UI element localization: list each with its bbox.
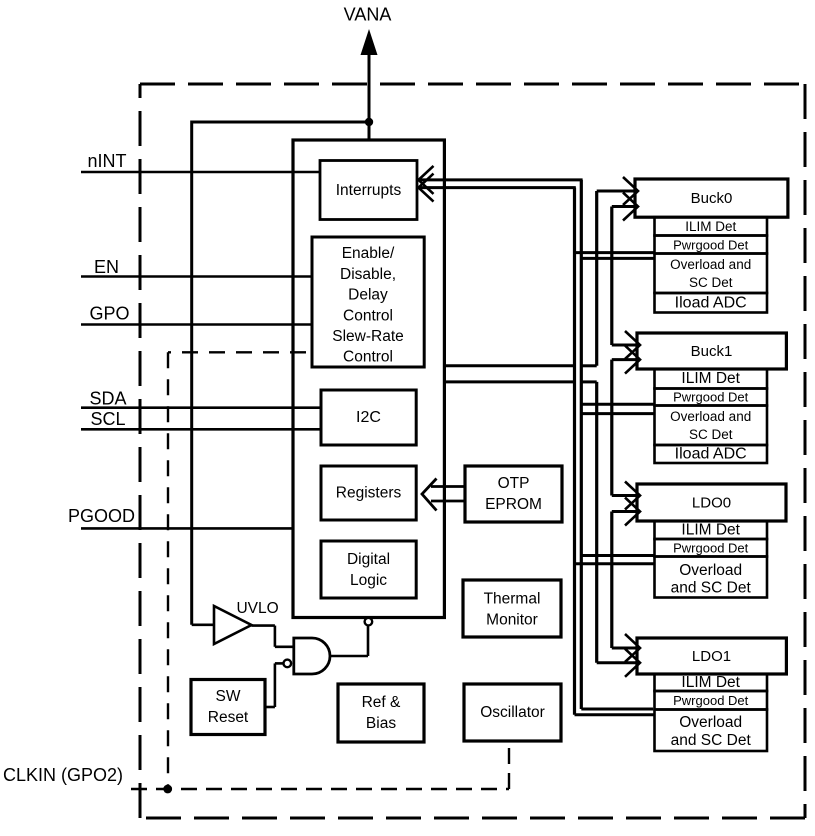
svg-text:Buck0: Buck0 [691, 190, 733, 207]
svg-text:SC Det: SC Det [689, 275, 733, 290]
svg-text:Thermal: Thermal [484, 591, 541, 608]
svg-text:Overload and: Overload and [670, 257, 751, 272]
svg-text:Iload ADC: Iload ADC [675, 294, 747, 311]
svg-text:Iload ADC: Iload ADC [675, 446, 747, 463]
svg-text:GPO: GPO [89, 304, 129, 324]
svg-text:ILIM Det: ILIM Det [681, 522, 740, 539]
svg-text:Pwrgood Det: Pwrgood Det [673, 540, 749, 555]
svg-text:Overload and: Overload and [670, 409, 751, 424]
svg-text:Buck1: Buck1 [691, 343, 733, 360]
svg-text:Enable/: Enable/ [342, 245, 395, 262]
svg-text:Control: Control [343, 307, 393, 324]
svg-text:ILIM Det: ILIM Det [685, 219, 736, 234]
svg-text:EPROM: EPROM [485, 496, 542, 513]
svg-text:Control: Control [343, 349, 393, 366]
svg-text:Bias: Bias [366, 715, 396, 732]
svg-text:SW: SW [216, 688, 241, 705]
svg-text:CLKIN (GPO2): CLKIN (GPO2) [3, 765, 123, 785]
svg-text:OTP: OTP [498, 475, 530, 492]
svg-text:and SC Det: and SC Det [671, 732, 752, 749]
svg-text:SCL: SCL [90, 409, 125, 429]
svg-text:SDA: SDA [89, 389, 126, 409]
svg-text:Pwrgood Det: Pwrgood Det [673, 390, 749, 405]
svg-text:PGOOD: PGOOD [68, 506, 135, 526]
svg-text:Digital: Digital [347, 551, 390, 568]
svg-text:SC Det: SC Det [689, 427, 733, 442]
svg-text:Registers: Registers [336, 485, 402, 502]
svg-text:LDO1: LDO1 [692, 648, 731, 665]
svg-text:Interrupts: Interrupts [336, 182, 402, 199]
svg-text:and SC Det: and SC Det [671, 580, 752, 597]
svg-text:Logic: Logic [350, 572, 387, 589]
svg-text:Overload: Overload [679, 714, 742, 731]
svg-text:Ref &: Ref & [362, 694, 401, 711]
svg-text:Oscillator: Oscillator [480, 704, 545, 721]
svg-text:EN: EN [94, 257, 119, 277]
svg-text:Overload: Overload [679, 562, 742, 579]
svg-text:ILIM Det: ILIM Det [681, 674, 740, 691]
svg-text:Pwrgood Det: Pwrgood Det [673, 693, 749, 708]
svg-text:nINT: nINT [87, 151, 126, 171]
svg-text:Pwrgood Det: Pwrgood Det [673, 237, 749, 252]
svg-text:VANA: VANA [344, 5, 392, 25]
svg-text:Disable,: Disable, [340, 266, 396, 283]
svg-text:Monitor: Monitor [486, 612, 538, 629]
svg-text:UVLO: UVLO [236, 600, 278, 617]
svg-text:Slew-Rate: Slew-Rate [332, 328, 404, 345]
svg-text:I2C: I2C [356, 409, 381, 426]
svg-text:ILIM Det: ILIM Det [681, 370, 740, 387]
svg-text:Reset: Reset [208, 709, 249, 726]
svg-text:Delay: Delay [348, 287, 388, 304]
svg-text:LDO0: LDO0 [692, 494, 731, 511]
